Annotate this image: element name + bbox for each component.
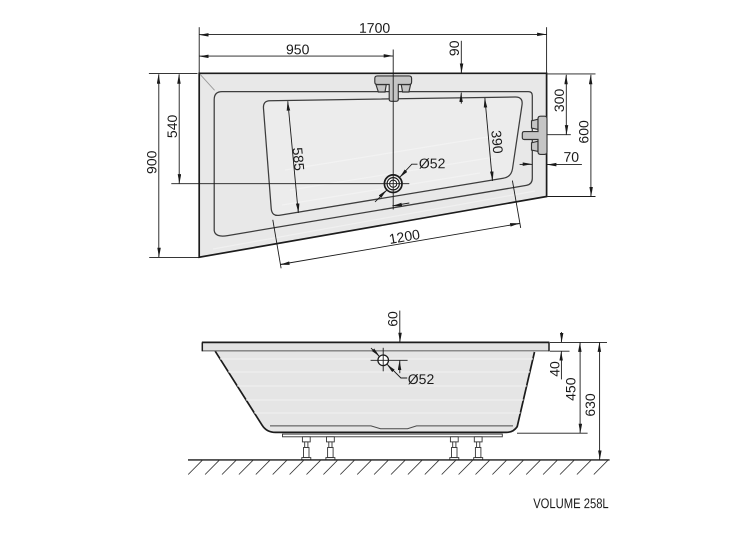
- svg-text:450: 450: [563, 377, 579, 401]
- svg-text:900: 900: [143, 150, 159, 174]
- svg-text:630: 630: [582, 393, 598, 417]
- svg-text:Ø52: Ø52: [408, 371, 435, 387]
- svg-text:600: 600: [576, 120, 592, 144]
- svg-text:390: 390: [488, 130, 506, 155]
- svg-text:1700: 1700: [359, 20, 390, 36]
- svg-text:950: 950: [286, 41, 310, 57]
- svg-text:Ø52: Ø52: [419, 155, 446, 171]
- svg-text:300: 300: [551, 89, 567, 113]
- svg-text:VOLUME 258L: VOLUME 258L: [533, 495, 609, 511]
- svg-text:585: 585: [290, 147, 308, 172]
- svg-text:60: 60: [385, 311, 401, 327]
- svg-text:70: 70: [564, 149, 580, 165]
- svg-text:540: 540: [164, 115, 180, 139]
- svg-text:90: 90: [446, 40, 462, 56]
- svg-text:40: 40: [546, 361, 562, 377]
